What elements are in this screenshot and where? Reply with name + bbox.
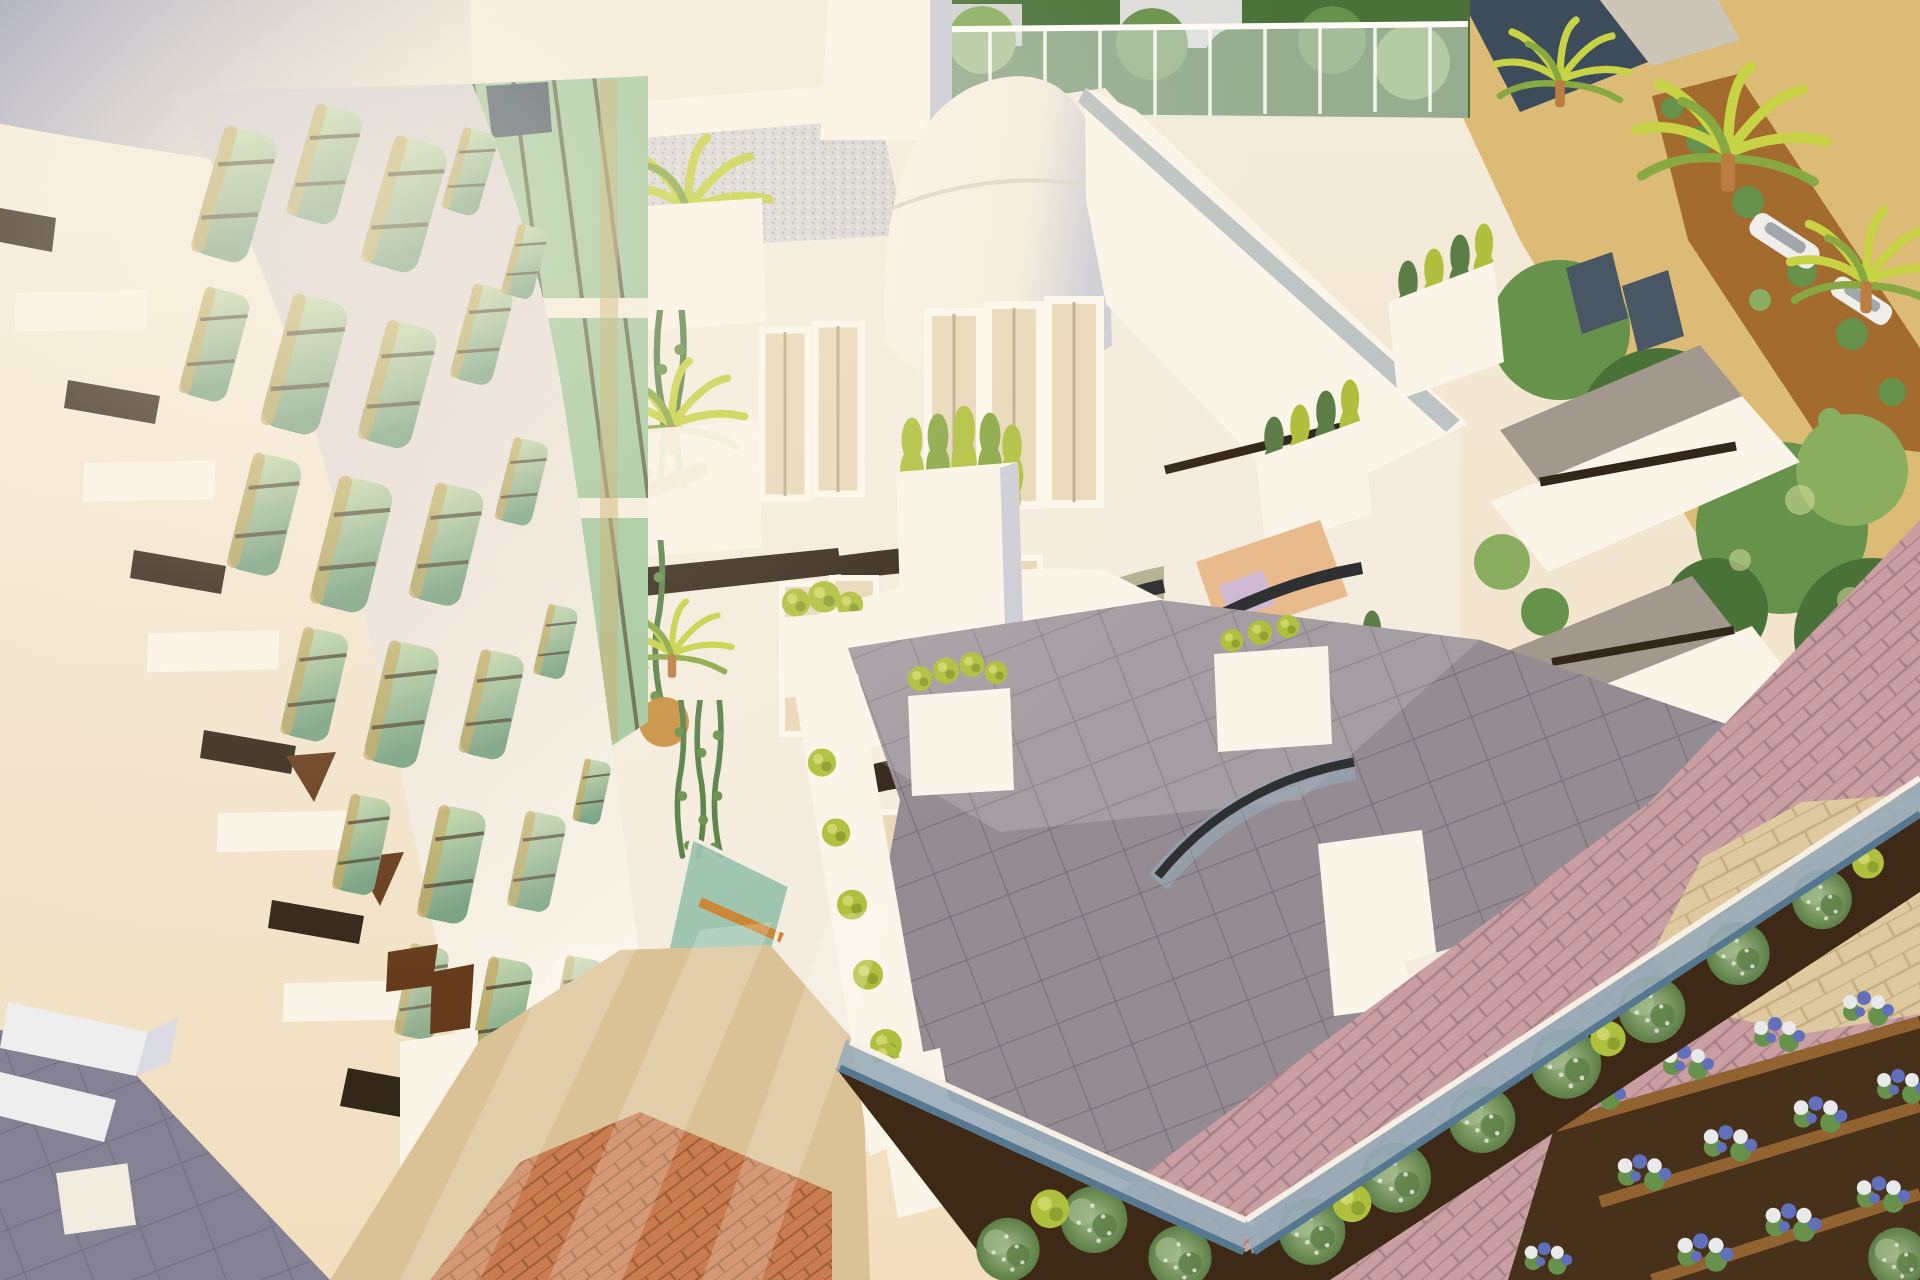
- lighting: [0, 0, 1920, 1280]
- render-image: Aerial view 3D rendering of a modern whi…: [0, 0, 1920, 1280]
- warm-tint: [0, 0, 1920, 1280]
- architectural-render: [0, 0, 1920, 1280]
